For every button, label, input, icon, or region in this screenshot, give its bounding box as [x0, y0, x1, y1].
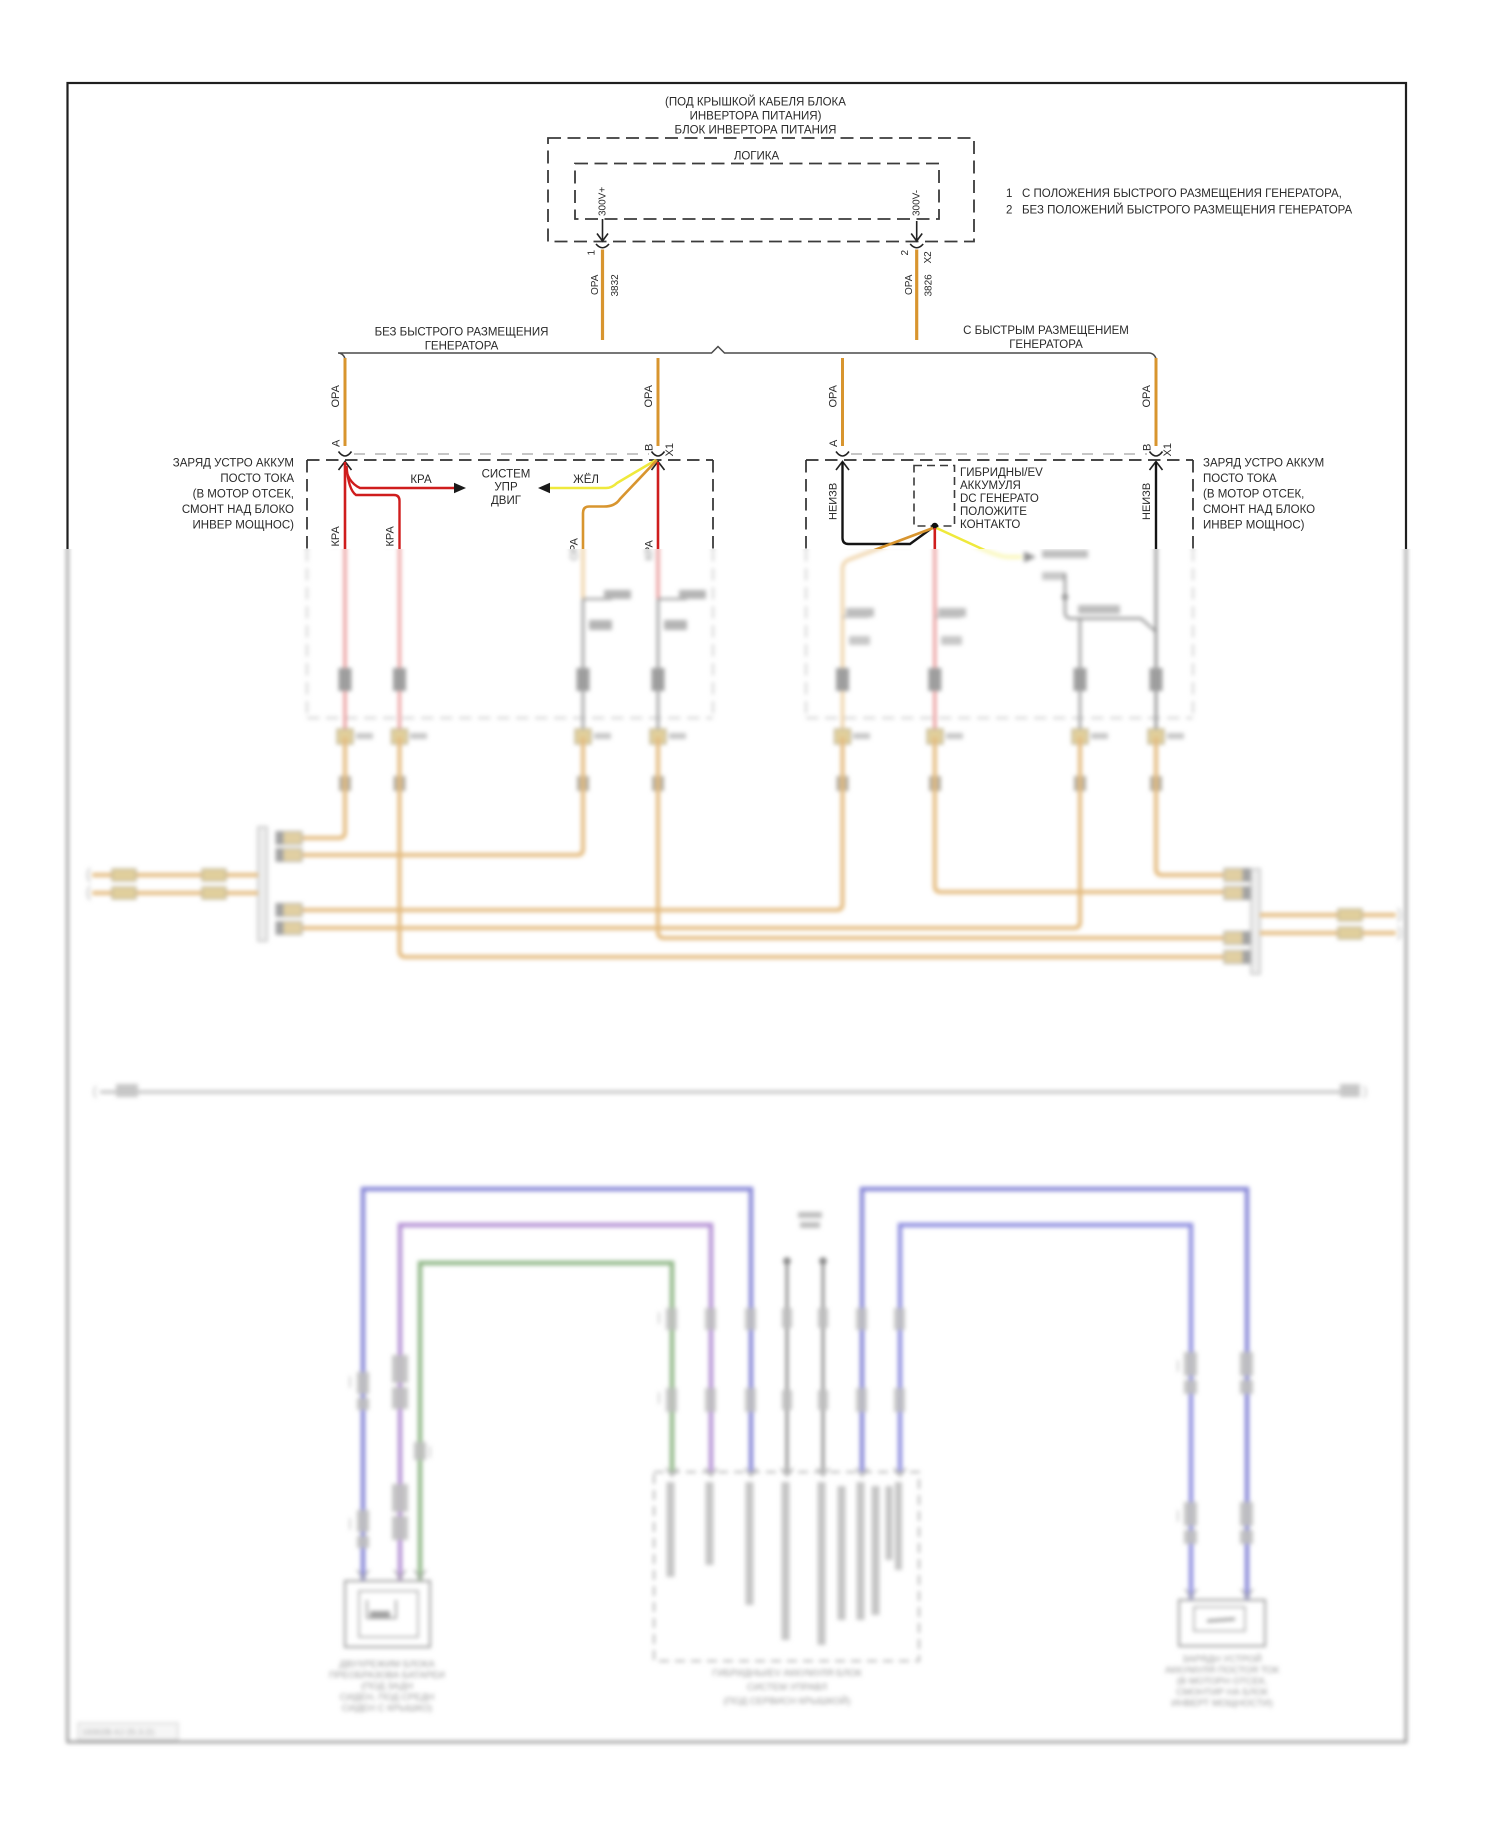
svg-text:B: B [644, 444, 656, 451]
svg-text:СИСТЕМ: СИСТЕМ [482, 469, 531, 481]
svg-text:A: A [828, 439, 840, 447]
svg-text:СМОНТ НАД БЛОКО: СМОНТ НАД БЛОКО [182, 504, 294, 516]
svg-text:БЕЗ БЫСТРОГО РАЗМЕЩЕНИЯ: БЕЗ БЫСТРОГО РАЗМЕЩЕНИЯ [375, 327, 549, 339]
svg-text:БЛОК ИНВЕРТОРА ПИТАНИЯ: БЛОК ИНВЕРТОРА ПИТАНИЯ [675, 125, 837, 137]
svg-text:ОРА: ОРА [1141, 384, 1153, 407]
svg-text:КОНТАКТО: КОНТАКТО [960, 519, 1020, 531]
svg-text:ИНВЕР МОЩНОС): ИНВЕР МОЩНОС) [1203, 520, 1305, 532]
svg-text:КРА: КРА [330, 525, 342, 546]
svg-text:ИНВЕРТОРА ПИТАНИЯ): ИНВЕРТОРА ПИТАНИЯ) [690, 111, 822, 123]
svg-text:ОРА: ОРА [827, 384, 839, 407]
svg-text:1: 1 [587, 250, 598, 256]
svg-text:(В МОТОР ОТСЕК,: (В МОТОР ОТСЕК, [193, 489, 294, 501]
svg-text:X1: X1 [1162, 443, 1174, 456]
svg-text:1 С ПОЛОЖЕНИЯ БЫСТРОГО РАЗМЕ: 1 С ПОЛОЖЕНИЯ БЫСТРОГО РАЗМЕЩЕНИЯ ГЕНЕРА… [1006, 188, 1342, 200]
svg-text:НЕИЗВ: НЕИЗВ [1141, 483, 1153, 520]
svg-text:B: B [1142, 444, 1154, 451]
svg-text:ГЕНЕРАТОРА: ГЕНЕРАТОРА [425, 341, 499, 353]
svg-text:ГИБРИДНЫ/EV: ГИБРИДНЫ/EV [960, 467, 1043, 479]
svg-text:ОРА: ОРА [590, 274, 601, 295]
svg-text:X2: X2 [923, 251, 934, 264]
svg-text:ПОСТО ТОКА: ПОСТО ТОКА [220, 473, 294, 485]
svg-text:ЛОГИКА: ЛОГИКА [734, 151, 780, 163]
svg-text:ИНВЕР МОЩНОС): ИНВЕР МОЩНОС) [193, 520, 295, 532]
svg-text:ДВИГ: ДВИГ [491, 495, 522, 507]
svg-text:АККУМУЛЯ: АККУМУЛЯ [960, 480, 1021, 492]
svg-text:ГЕНЕРАТОРА: ГЕНЕРАТОРА [1009, 339, 1083, 351]
svg-text:(В МОТОР ОТСЕК,: (В МОТОР ОТСЕК, [1203, 489, 1304, 501]
svg-text:УПР: УПР [494, 482, 518, 494]
svg-text:DC ГЕНЕРАТО: DC ГЕНЕРАТО [960, 493, 1039, 505]
svg-text:300V+: 300V+ [598, 187, 609, 216]
svg-text:2: 2 [900, 250, 911, 256]
svg-text:НЕИЗВ: НЕИЗВ [828, 483, 840, 520]
svg-text:2 БЕЗ ПОЛОЖЕНИЙ БЫСТРОГО РАЗ: 2 БЕЗ ПОЛОЖЕНИЙ БЫСТРОГО РАЗМЕЩЕНИЯ ГЕНЕ… [1006, 204, 1353, 217]
svg-text:3826: 3826 [924, 274, 935, 297]
svg-text:ПОСТО ТОКА: ПОСТО ТОКА [1203, 473, 1277, 485]
svg-text:300V-: 300V- [912, 190, 923, 216]
svg-text:СМОНТ НАД БЛОКО: СМОНТ НАД БЛОКО [1203, 504, 1315, 516]
svg-text:ЗАРЯД УСТРО АККУМ: ЗАРЯД УСТРО АККУМ [173, 458, 294, 470]
svg-text:ОРА: ОРА [330, 384, 342, 407]
svg-text:(ПОД КРЫШКОЙ КАБЕЛЯ БЛОКА: (ПОД КРЫШКОЙ КАБЕЛЯ БЛОКА [665, 96, 846, 109]
svg-text:С БЫСТРЫМ РАЗМЕЩЕНИЕМ: С БЫСТРЫМ РАЗМЕЩЕНИЕМ [963, 325, 1129, 337]
svg-text:X1: X1 [664, 443, 676, 456]
svg-text:ЗАРЯД УСТРО АККУМ: ЗАРЯД УСТРО АККУМ [1203, 458, 1324, 470]
svg-text:ЖЁЛ: ЖЁЛ [573, 474, 599, 486]
svg-text:A: A [331, 439, 343, 447]
svg-text:3832: 3832 [610, 274, 621, 297]
svg-text:ПОЛОЖИТЕ: ПОЛОЖИТЕ [960, 506, 1027, 518]
svg-text:ОРА: ОРА [643, 384, 655, 407]
svg-text:КРА: КРА [385, 525, 397, 546]
svg-text:ОРА: ОРА [904, 274, 915, 295]
svg-text:КРА: КРА [410, 474, 432, 486]
